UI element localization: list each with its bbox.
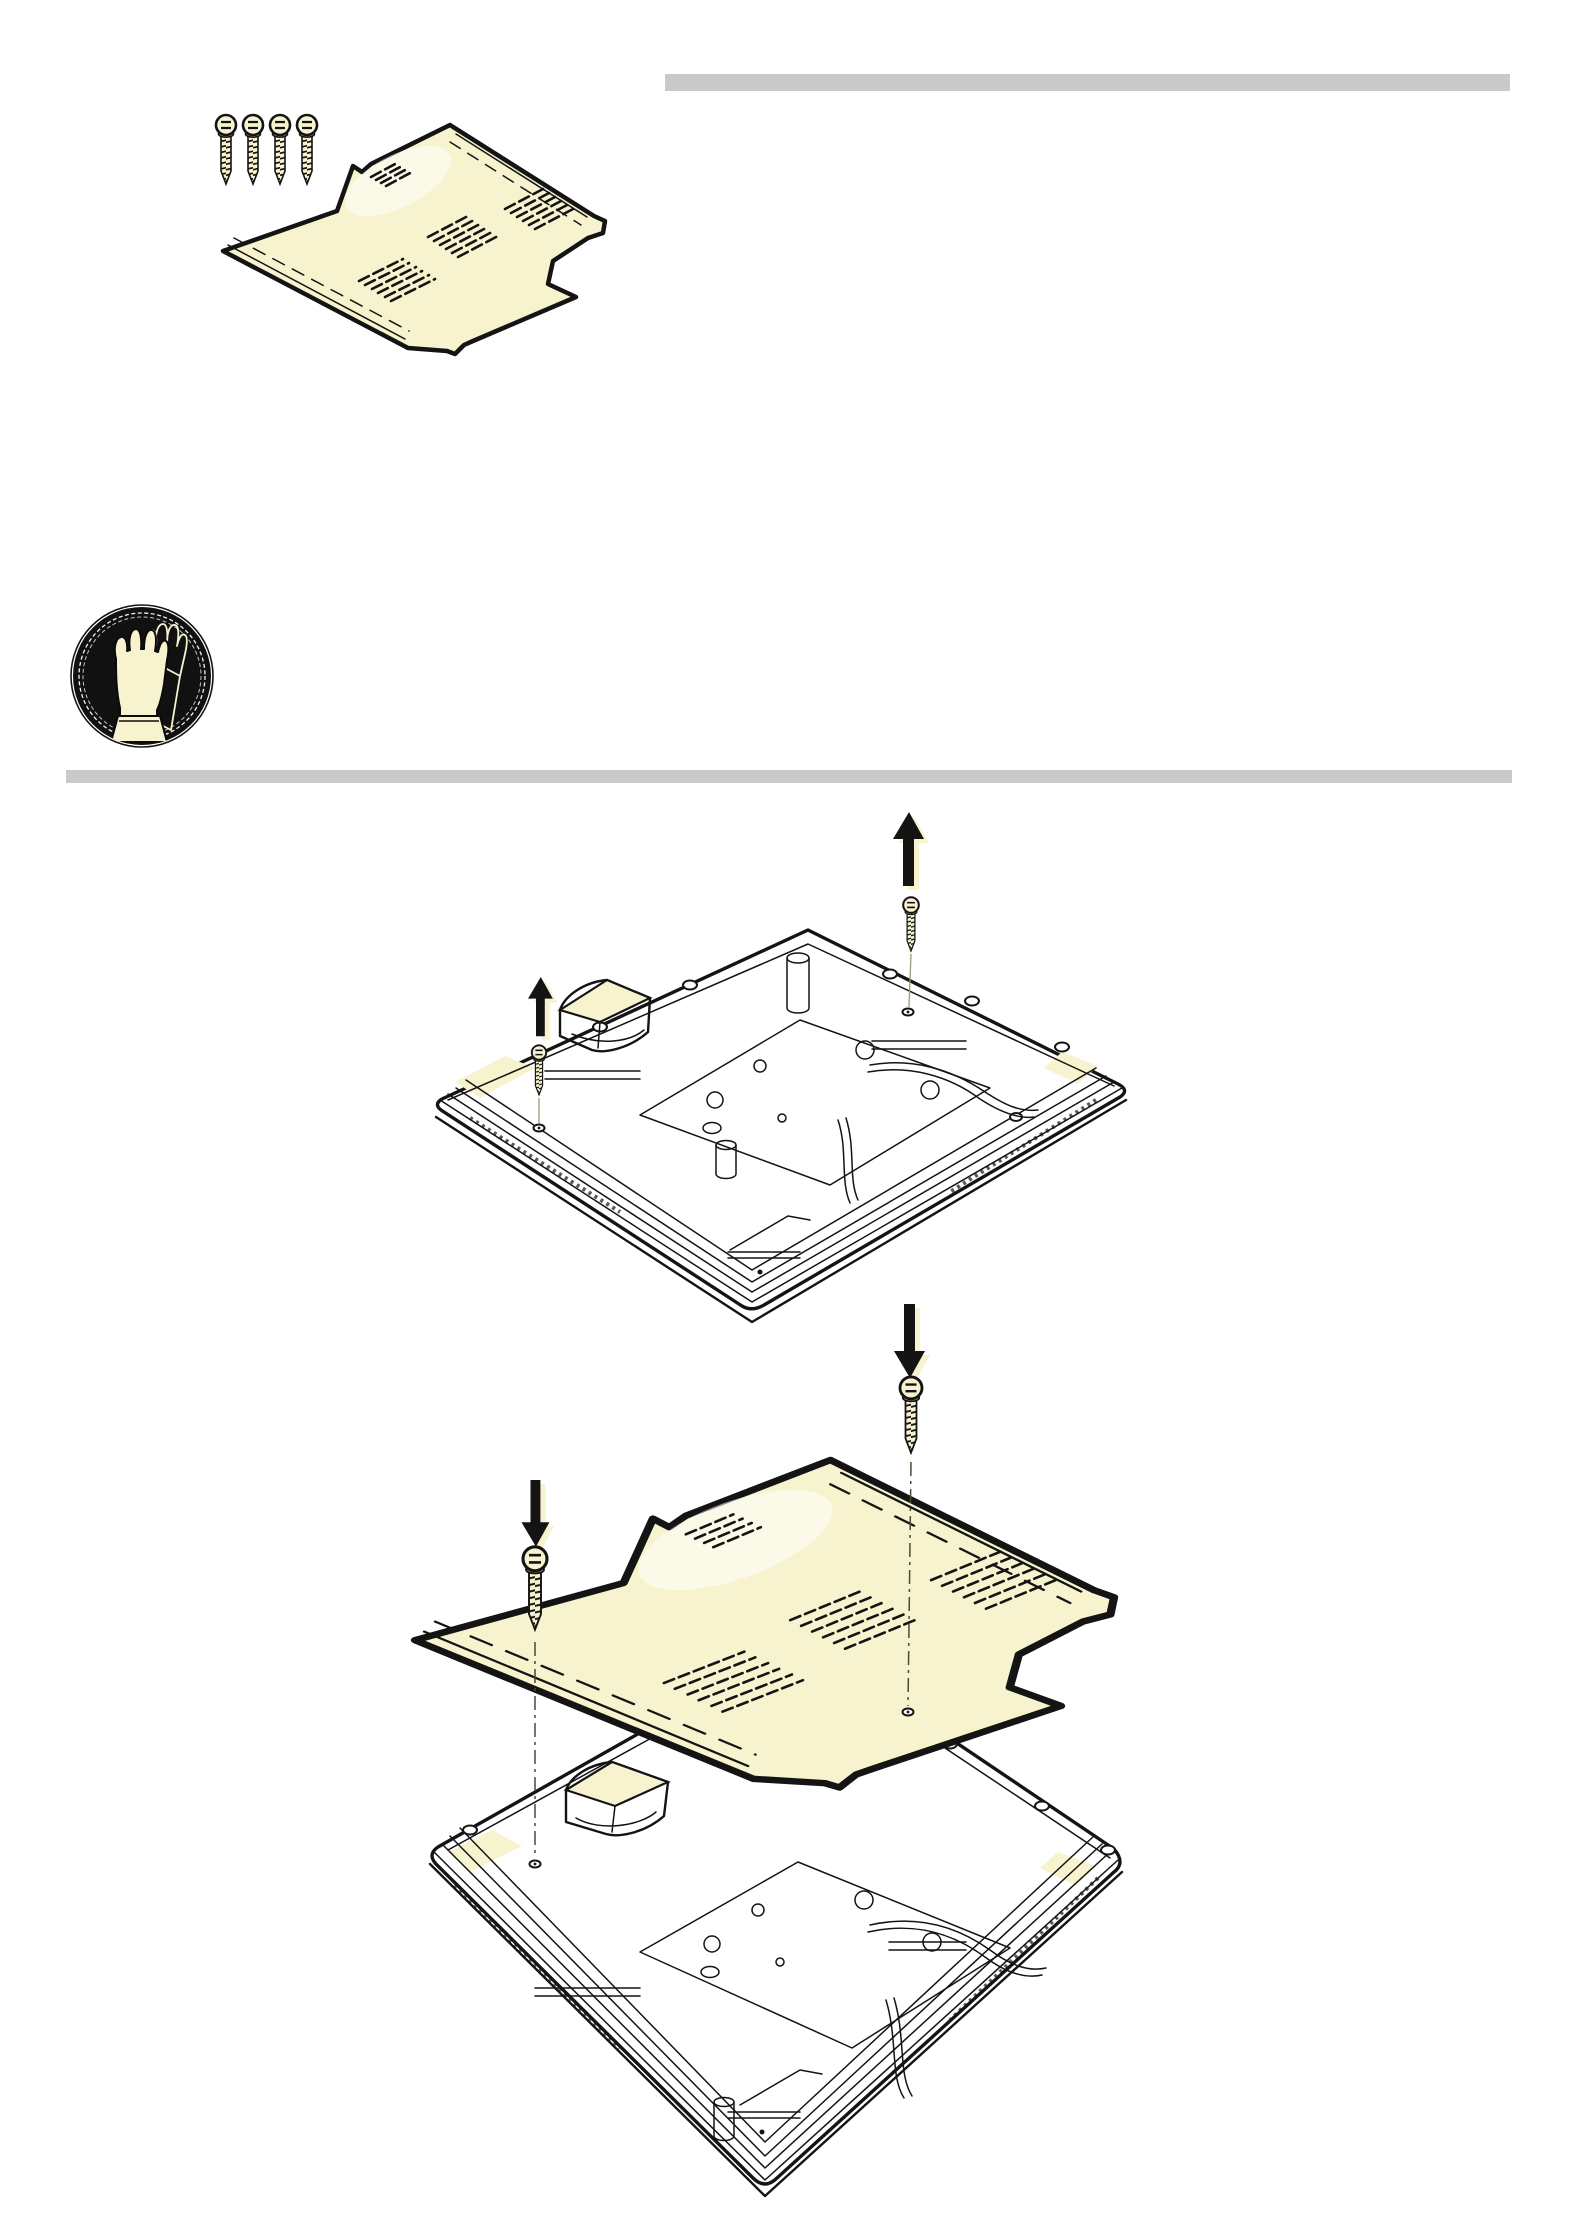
up-arrow-icon-right xyxy=(893,812,924,886)
fastening-screws-icon xyxy=(216,115,317,184)
manual-page xyxy=(0,0,1576,2230)
supplied-parts-figure xyxy=(140,78,660,378)
front-glove-cuff xyxy=(111,716,167,742)
wear-protective-gloves-icon xyxy=(70,604,214,748)
screw-icon-right xyxy=(900,1377,922,1453)
section-divider-rule xyxy=(66,770,1512,783)
remove-screws-step-figure xyxy=(400,795,1170,1340)
insulation-mat-large xyxy=(415,1460,1114,1787)
screw-icon-right xyxy=(903,897,919,951)
install-mat-step-figure xyxy=(370,1290,1180,2220)
top-right-rule xyxy=(665,74,1510,91)
